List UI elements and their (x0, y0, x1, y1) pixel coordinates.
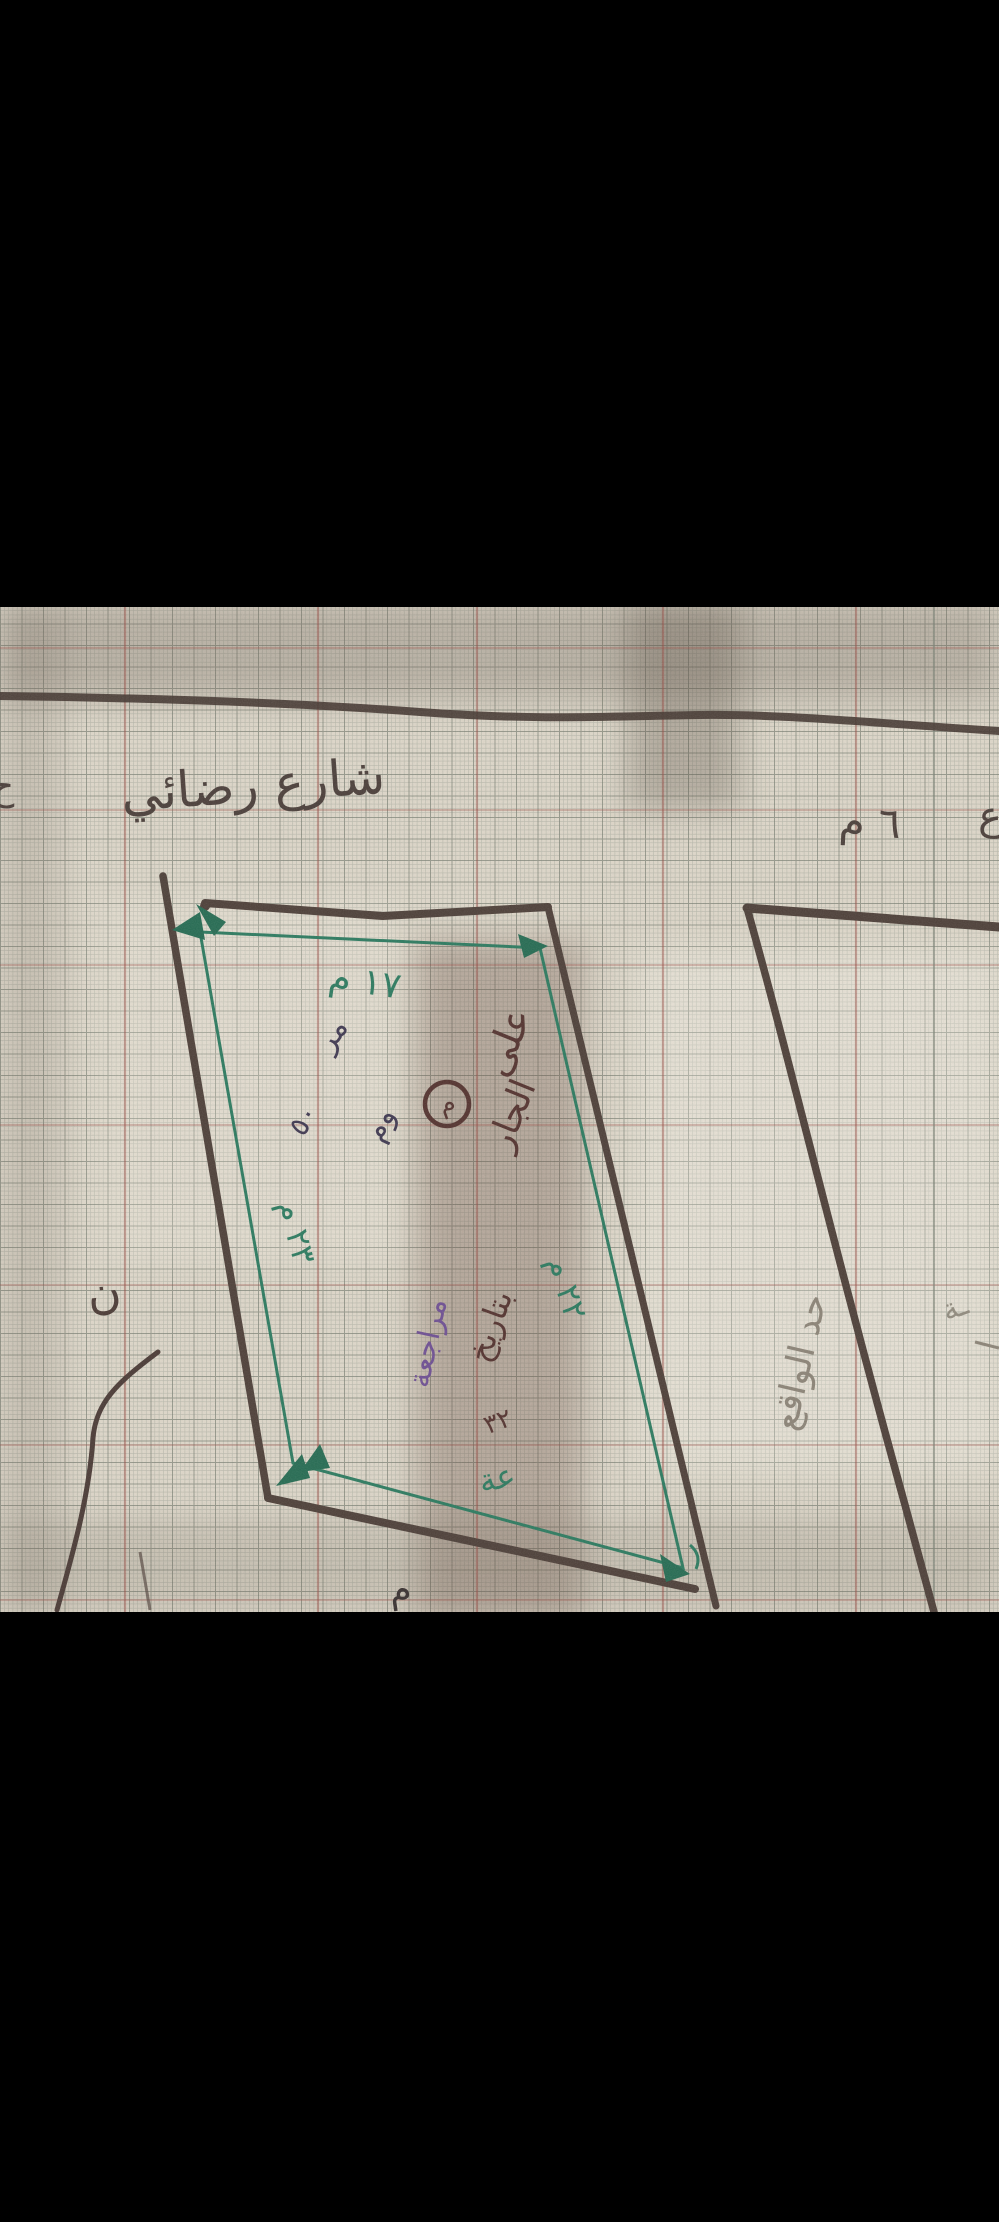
letterbox-bottom (0, 1612, 999, 2222)
photo-grain-overlay (0, 607, 999, 1612)
screenshot-stage: شارع رضائي ح ٦ م ع ١٧ م ٢٣ م ٢٢ م م (0, 0, 999, 2222)
letterbox-top (0, 0, 999, 607)
photo-of-survey-sketch: شارع رضائي ح ٦ م ع ١٧ م ٢٣ م ٢٢ م م (0, 0, 999, 2222)
